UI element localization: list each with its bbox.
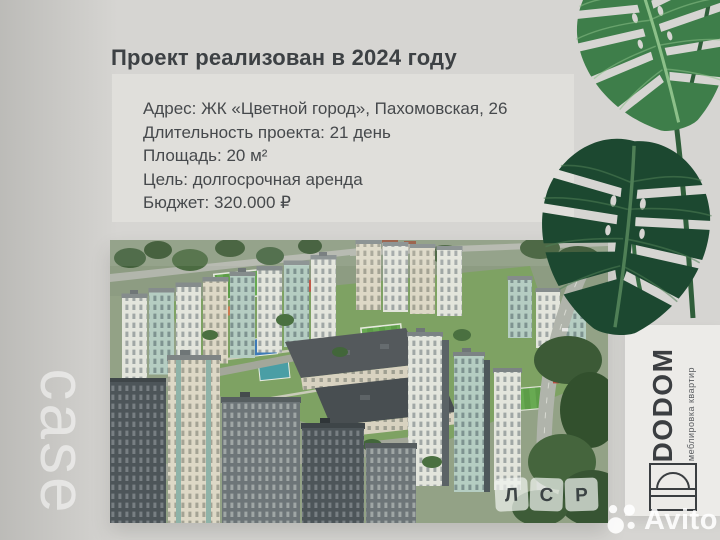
details-panel: Адрес: ЖК «Цветной город», Пахомовская, … (112, 74, 574, 222)
lsr-letter-l: Л (504, 485, 518, 507)
aerial-photo-illustration: Л С Р (110, 240, 608, 523)
detail-goal: Цель: долгосрочная аренда (143, 168, 574, 192)
detail-duration: Длительность проекта: 21 день (143, 121, 574, 145)
stem (671, 84, 693, 318)
lsr-developer-logo: Л С Р (494, 477, 598, 512)
brand-card: DODOM меблировка квартир (625, 325, 720, 516)
avito-watermark-text: Avito (644, 504, 718, 537)
brand-name: DODOM (646, 340, 680, 470)
lsr-letter-r: Р (575, 485, 589, 506)
stem (633, 142, 645, 294)
avito-watermark: Avito (604, 501, 718, 539)
detail-budget: Бюджет: 320.000 ₽ (143, 191, 574, 215)
monstera-leaf-light (560, 0, 720, 150)
lsr-letter-s: С (539, 485, 554, 506)
detail-area: Площадь: 20 м² (143, 144, 574, 168)
stem (691, 2, 709, 86)
avito-logo-icon (604, 501, 642, 539)
slide-title: Проект реализован в 2024 году (111, 45, 457, 71)
detail-address: Адрес: ЖК «Цветной город», Пахомовская, … (143, 97, 574, 121)
aerial-photo: Л С Р (110, 240, 608, 523)
brand-tagline: меблировка квартир (685, 364, 697, 464)
case-vertical-label: case (25, 350, 101, 534)
